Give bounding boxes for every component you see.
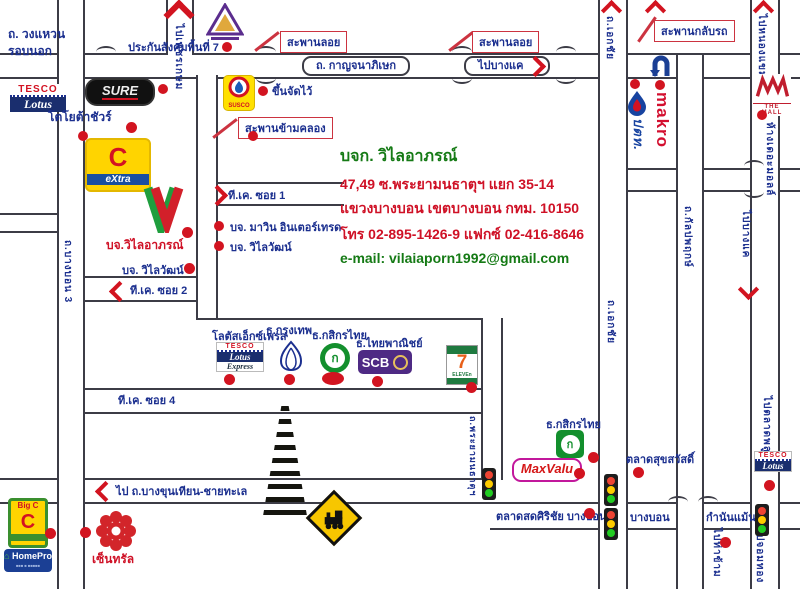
junction-mark — [556, 46, 576, 58]
bangkok-bank-label: ธ.กรุงเทพ — [266, 321, 312, 339]
express-text: Express — [217, 362, 263, 371]
bangkok-bank-logo — [276, 340, 306, 372]
lotus-text: Lotus — [217, 352, 263, 362]
location-dot — [214, 221, 224, 231]
location-map: ถ. วงแหวน รอบนอก ถ. กาญจนาภิเษก ไปบางแค … — [0, 0, 800, 589]
susco-text: SUSCO — [224, 103, 254, 109]
junction-mark — [96, 46, 116, 58]
company-address-1: 47,49 ซ.พระยามนธาตุฯ แยก 35-14 — [340, 174, 554, 196]
ptt-flame-icon — [626, 90, 648, 116]
road-left-stub — [0, 213, 57, 233]
scb-text: SCB — [362, 355, 389, 370]
to-phetkasem-label: ไปเพชรเกษม — [171, 24, 186, 104]
makro-logo: makro — [652, 92, 672, 156]
to-bangkhunthian-label: ไป ถ.บางขุนเทียน-ชายทะเล — [116, 482, 247, 500]
homepro-text: ⌂ HomePro — [4, 551, 52, 561]
uturn-icon — [650, 54, 672, 78]
overpass-box-1: สะพานลอย — [280, 31, 347, 53]
company-address-2: แขวงบางบอน เขตบางบอน กทม. 10150 — [340, 198, 579, 220]
kbank-k: ก — [325, 348, 345, 368]
ekachai-label-top: ถ.เอกชัย — [602, 16, 617, 60]
location-dot — [158, 84, 168, 94]
company-name: บจก. วิไลอาภรณ์ — [340, 144, 458, 169]
scb-ring-icon — [393, 355, 408, 370]
traffic-light-icon — [755, 504, 769, 536]
kbank-logo: ก — [320, 343, 350, 373]
homepro-tagline-bar: ■■■ ■ ■■■■■ — [4, 564, 52, 568]
lotus-express-logo: TESCO Lotus Express — [216, 342, 264, 372]
location-dot — [248, 131, 258, 141]
road-kanlapaphruek — [676, 55, 704, 589]
location-dot — [224, 374, 235, 385]
north-arrow-uturn — [645, 0, 666, 21]
location-dot — [182, 227, 193, 238]
to-bangkhae-v-label: ไปบางแค — [738, 210, 753, 278]
bigc-c-text: C — [87, 140, 149, 174]
location-dot — [372, 376, 383, 387]
location-dot — [588, 452, 599, 463]
tk-soi1-label: ที.เค. ซอย 1 — [228, 186, 285, 204]
location-dot — [222, 42, 232, 52]
homepro-logo: ⌂ HomePro ■■■ ■ ■■■■■ — [4, 549, 52, 572]
lotus-text: Lotus — [755, 461, 791, 471]
tesco-lotus-logo-2: TESCO Lotus — [754, 451, 792, 472]
to-nongkhaem-label: ไปหนองแขม — [754, 14, 769, 60]
company-email: e-mail: vilaiaporn1992@gmail.com — [340, 250, 569, 266]
kamnanmaen-label: กำนันแม้น — [706, 508, 756, 526]
location-dot — [633, 467, 644, 478]
susco-icon — [228, 76, 250, 98]
location-dot — [45, 528, 56, 539]
location-dot — [466, 382, 477, 393]
kbank-logo-2: ก — [556, 430, 584, 458]
bangbon-label: บางบอน — [630, 508, 670, 526]
traffic-light-icon — [482, 468, 496, 500]
soi-block-line — [196, 318, 482, 320]
location-dot — [757, 110, 767, 120]
maxvalu-logo: MaxValu — [512, 458, 582, 482]
tk-soi2-label: ที.เค. ซอย 2 — [130, 281, 187, 299]
bigc-c-text: C — [11, 510, 45, 534]
junction-mark — [698, 496, 718, 508]
suksawat-market-label: ตลาดสุขสวัสดิ์ — [626, 450, 694, 468]
to-chomthong-label: ไปจอมทอง — [752, 528, 767, 586]
bangbon3-label: ถ.บางบอน 3 — [60, 240, 75, 310]
location-dot — [720, 537, 731, 548]
location-dot — [574, 468, 585, 479]
susco-note-label: ขึ้นจัดไว้ — [272, 82, 312, 100]
ekachai-label-mid: ถ.เอกชัย — [603, 300, 618, 420]
sure-text: SURE — [102, 83, 138, 100]
location-dot — [630, 79, 640, 89]
location-dot — [655, 80, 665, 90]
traffic-light-icon — [604, 508, 618, 540]
central-logo — [96, 511, 136, 551]
toyota-sure-label: โตโยต้าชัวร์ — [48, 108, 112, 127]
ring-road-label-2: รอบนอก — [8, 42, 52, 61]
railway-track — [262, 406, 308, 522]
company-phone: โทร 02-895-1426-9 แฟกซ์ 02-416-8646 — [340, 224, 584, 246]
tesco-text: TESCO — [755, 452, 791, 461]
wilaiwat-label-2: บจ. วิไลวัฒน์ — [122, 261, 184, 279]
wilaiwat-label-1: บจ. วิไลวัฒน์ — [230, 238, 292, 256]
bigc-logo: Big C C — [8, 498, 48, 548]
ptt-logo-text: ปตท. — [628, 118, 649, 160]
sso-office-label: ประกันสังคมพื้นที่ 7 — [128, 38, 219, 56]
scb-logo: SCB — [358, 350, 412, 374]
location-dot — [214, 241, 224, 251]
kanchanapisek-label: ถ. กาญจนาภิเษก — [302, 56, 410, 76]
location-dot — [584, 508, 595, 519]
toyota-sure-logo: SURE — [85, 78, 155, 106]
the-mall-label: ห้างเดอะมอลล์ — [762, 122, 777, 192]
location-dot — [78, 131, 88, 141]
vilaiaporn-logo — [140, 183, 186, 233]
junction-mark — [744, 160, 764, 172]
junction-mark — [556, 72, 576, 84]
location-dot — [184, 263, 195, 274]
location-dot — [258, 86, 268, 96]
train-icon — [321, 505, 347, 531]
junction-mark — [744, 186, 764, 198]
bigc-small-text: Big C — [11, 501, 45, 510]
marin-intertrade-label: บจ. มาวิน อินเตอร์เทรด — [230, 218, 341, 236]
traffic-light-icon — [604, 474, 618, 506]
location-dot — [126, 122, 137, 133]
overpass-box-2: สะพานลอย — [472, 31, 539, 53]
seven-eleven-logo: 7 ELEVEn — [446, 345, 478, 385]
the-mall-m-icon — [753, 74, 791, 98]
tesco-text: TESCO — [10, 84, 66, 97]
kbank-k: ก — [561, 435, 580, 454]
central-label: เซ็นทรัล — [92, 550, 134, 569]
susco-logo: SUSCO — [223, 75, 255, 111]
junction-mark — [668, 496, 688, 508]
location-dot — [322, 372, 344, 385]
sso-triangle-icon — [206, 3, 244, 43]
road-phrayamonthat — [481, 318, 503, 480]
kanlapaphruek-label: ถ.กัลปพฤกษ์ — [680, 206, 695, 276]
phrayamonthat-label: ถ.พระยามนธาตุฯ — [466, 416, 480, 478]
seven-text: 7 — [447, 354, 477, 372]
maxvalu-text: MaxValu — [521, 461, 573, 476]
location-dot — [80, 527, 91, 538]
location-dot — [764, 480, 775, 491]
to-talatphlu-label: ไปตลาดพลู — [759, 396, 774, 452]
location-dot — [284, 374, 295, 385]
uturn-bridge-box: สะพานกลับรถ — [654, 20, 735, 42]
tesco-text: TESCO — [217, 343, 263, 352]
vilaiaporn-label: บจ.วิไลอาภรณ์ — [106, 236, 184, 255]
tk-soi4-label: ที.เค. ซอย 4 — [118, 391, 175, 409]
to-thakham-label: ไปท่าข้าม — [709, 528, 724, 584]
